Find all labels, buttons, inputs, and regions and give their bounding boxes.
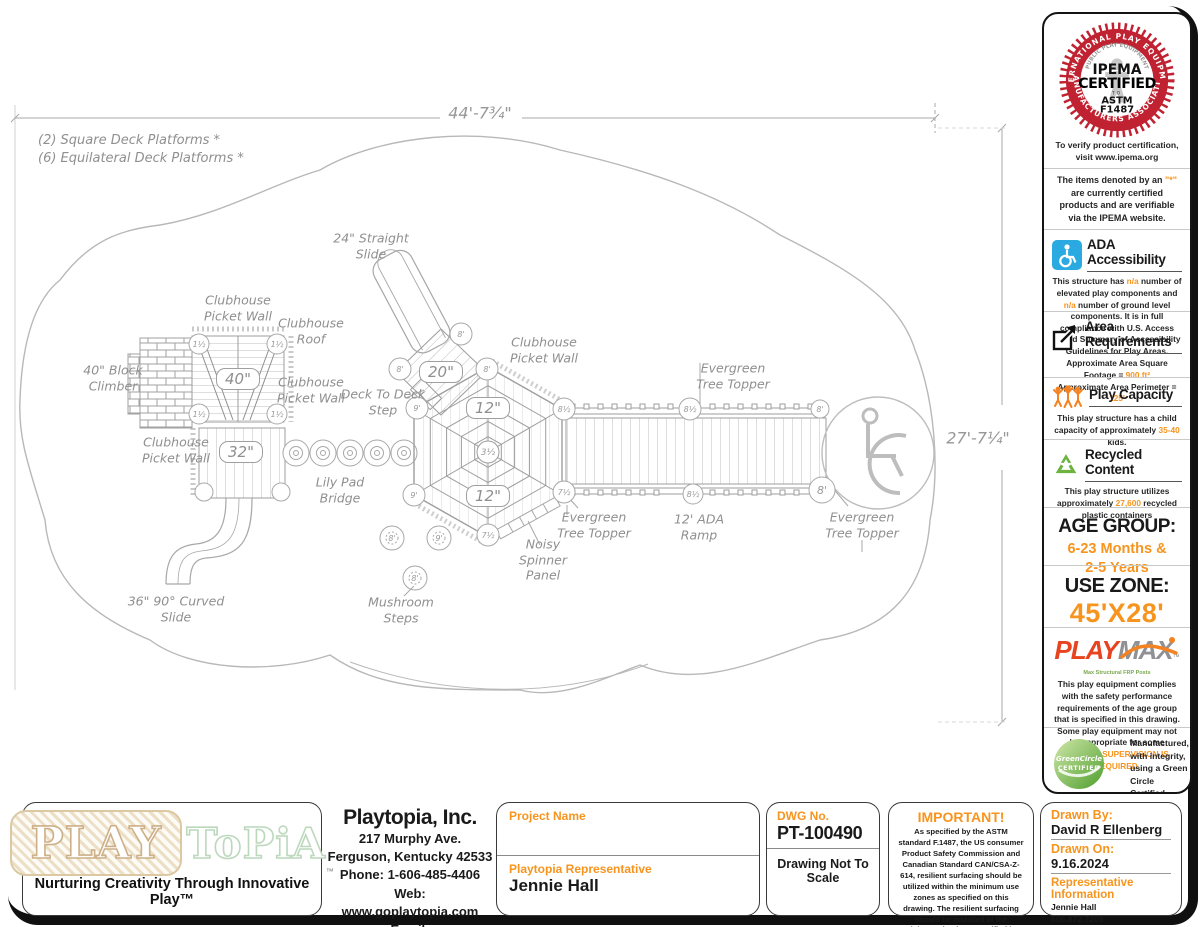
logo-play-text: PLAY xyxy=(31,818,162,869)
svg-text:8': 8' xyxy=(411,574,418,583)
svg-text:CERTIFIED: CERTIFIED xyxy=(1078,76,1156,92)
dwg-box: DWG No. PT-100490 Drawing Not To Scale xyxy=(766,802,880,916)
height-dimension: 27'-7¼" xyxy=(940,429,1016,448)
recycle-icon xyxy=(1052,452,1080,478)
logo-tagline: Nurturing Creativity Through Innovative … xyxy=(23,876,321,908)
ipema-section: INTERNATIONAL PLAY EQUIPMENT MANUFACTURE… xyxy=(1044,14,1190,168)
ada-na-2: n/a xyxy=(1064,300,1076,310)
company-email: Email: info@goplaytopia.com xyxy=(327,921,493,927)
label-picket-wall-top: Clubhouse Picket Wall xyxy=(203,292,273,323)
important-title: IMPORTANT! xyxy=(897,809,1025,825)
svg-text:8': 8' xyxy=(388,534,395,543)
ipema-seal: INTERNATIONAL PLAY EQUIPMENT MANUFACTURE… xyxy=(1058,21,1176,139)
label-lily-pad: Lily Pad Bridge xyxy=(305,474,375,505)
ada-title: ADA Accessibility xyxy=(1087,237,1182,272)
label-evergreen-top: Evergreen Tree Topper xyxy=(689,360,777,391)
rep-phone: 606.872.7209 xyxy=(1051,913,1171,925)
ipema-note-star: "*" xyxy=(1165,175,1177,185)
drawn-on-label: Drawn On: xyxy=(1051,842,1171,856)
platform-note-2: (6) Equilateral Deck Platforms * xyxy=(38,151,244,166)
svg-text:9': 9' xyxy=(410,491,417,500)
deck-size-32: 32" xyxy=(219,441,263,463)
ipema-verify-text: To verify product certification, visit w… xyxy=(1052,139,1182,163)
ipema-note-pre: The items denoted by an xyxy=(1057,175,1165,185)
recycled-section: Recycled Content This play structure uti… xyxy=(1044,439,1190,507)
label-deck-step: Deck To Deck Step xyxy=(340,386,426,417)
project-box: Project Name Playtopia Representative Je… xyxy=(496,802,760,916)
svg-text:CERTIFIED: CERTIFIED xyxy=(1058,764,1100,772)
age-group-line1: 6-23 Months & xyxy=(1052,540,1182,558)
capacity-section: Play Capacity This play structure has a … xyxy=(1044,377,1190,439)
label-picket-wall-mid: Clubhouse Picket Wall xyxy=(509,334,579,365)
logo-topia-text: ToPiA xyxy=(186,819,326,868)
svg-text:1½: 1½ xyxy=(193,410,206,419)
green-circle-badge: GreenCircle CERTIFIED POLY'TUF POLYFORCE xyxy=(1052,737,1124,794)
green-circle-section: GreenCircle CERTIFIED POLY'TUF POLYFORCE… xyxy=(1044,727,1190,794)
rep-info-label: Representative Information xyxy=(1051,877,1171,901)
drawn-box: Drawn By: David R Ellenberg Drawn On: 9.… xyxy=(1040,802,1182,916)
capacity-value: 35-40 xyxy=(1158,425,1179,435)
platform-note-1: (2) Square Deck Platforms * xyxy=(38,133,220,148)
svg-text:8': 8' xyxy=(483,365,490,374)
playmax-section: PLAYMAX™ Max Structural FRP Posts This p… xyxy=(1044,627,1190,727)
label-ada-ramp: 12' ADA Ramp xyxy=(656,511,742,542)
svg-text:1½: 1½ xyxy=(193,340,206,349)
lily-pad-bridge xyxy=(283,440,417,466)
playtopia-logo: PLAY ToPiA ™ xyxy=(10,810,334,876)
age-group-section: AGE GROUP: 6-23 Months & 2-5 Years xyxy=(1044,507,1190,565)
deck-size-12-top: 12" xyxy=(466,397,510,419)
area-expand-icon xyxy=(1052,323,1080,351)
representative-value: Jennie Hall xyxy=(509,876,747,896)
ada-wheelchair-icon xyxy=(1052,240,1082,270)
playmax-play-text: PLAY xyxy=(1054,635,1117,665)
curved-slide xyxy=(166,498,252,584)
svg-text:8½: 8½ xyxy=(684,405,697,414)
label-curved-slide: 36" 90° Curved Slide xyxy=(124,593,228,624)
play-hatch-badge: PLAY xyxy=(10,810,182,876)
ada-text-1: This structure has xyxy=(1052,276,1126,286)
children-icon xyxy=(1052,385,1084,409)
project-name-label: Project Name xyxy=(509,809,747,823)
label-evergreen-right: Evergreen Tree Topper xyxy=(816,509,908,540)
company-info: Playtopia, Inc. 217 Murphy Ave. Ferguson… xyxy=(327,806,493,927)
drawn-by-value: David R Ellenberg xyxy=(1051,822,1171,840)
svg-text:8': 8' xyxy=(457,330,464,339)
label-mushroom: Mushroom Steps xyxy=(357,594,445,625)
company-name: Playtopia, Inc. xyxy=(327,806,493,830)
area-title: Area Requirements xyxy=(1085,319,1182,354)
use-zone-value: 45'X28' xyxy=(1052,598,1182,629)
svg-text:7½: 7½ xyxy=(482,531,495,540)
svg-text:8': 8' xyxy=(816,405,823,414)
wheelchair-symbol xyxy=(822,397,934,509)
representative-label: Playtopia Representative xyxy=(509,862,747,876)
recycled-title: Recycled Content xyxy=(1085,447,1182,482)
company-address-1: 217 Murphy Ave. xyxy=(327,830,493,848)
deck-size-12-bottom: 12" xyxy=(466,485,510,507)
logo-box: PLAY ToPiA ™ Nurturing Creativity Throug… xyxy=(22,802,322,916)
use-zone-section: USE ZONE: 45'X28' xyxy=(1044,565,1190,627)
drawing-sheet: 1½ 1½ 1½ 1½ 8' 8' 8' 9' 9' 7½ 8½ 7½ 8½ 8… xyxy=(0,0,1200,927)
certification-sidebar: INTERNATIONAL PLAY EQUIPMENT MANUFACTURE… xyxy=(1042,12,1192,794)
label-block-climber: 40" Block Climber xyxy=(63,362,163,393)
age-group-title: AGE GROUP: xyxy=(1052,516,1182,538)
svg-text:1½: 1½ xyxy=(271,410,284,419)
drawn-by-label: Drawn By: xyxy=(1051,808,1171,822)
svg-text:8': 8' xyxy=(396,365,403,374)
label-picket-wall-left: Clubhouse Picket Wall xyxy=(139,434,213,465)
dwg-number: PT-100490 xyxy=(777,823,869,844)
width-dimension: 44'-7¾" xyxy=(442,104,518,123)
label-spinner: Noisy Spinner Panel xyxy=(513,537,573,584)
label-straight-slide: 24" Straight Slide xyxy=(325,230,417,261)
plan-linework: 1½ 1½ 1½ 1½ 8' 8' 8' 9' 9' 7½ 8½ 7½ 8½ 8… xyxy=(0,0,1040,795)
company-address-2: Ferguson, Kentucky 42533 xyxy=(327,848,493,866)
rep-name: Jennie Hall xyxy=(1051,901,1171,913)
label-picket-wall-right: Clubhouse Picket Wall xyxy=(276,374,346,405)
svg-text:7½: 7½ xyxy=(558,488,571,497)
plan-drawing: 1½ 1½ 1½ 1½ 8' 8' 8' 9' 9' 7½ 8½ 7½ 8½ 8… xyxy=(0,0,1040,795)
green-circle-text: Manufactured, with integrity, using a Gr… xyxy=(1130,737,1189,794)
svg-text:8½: 8½ xyxy=(687,490,700,499)
dwg-label: DWG No. xyxy=(777,809,869,823)
ada-na-1: n/a xyxy=(1127,276,1139,286)
playmax-swoosh-icon xyxy=(1120,635,1180,661)
svg-text:3½: 3½ xyxy=(481,448,496,458)
dwg-scale-note: Drawing Not To Scale xyxy=(767,849,879,893)
deck-size-40: 40" xyxy=(216,368,260,390)
important-box: IMPORTANT! As specified by the ASTM stan… xyxy=(888,802,1034,916)
company-phone: Phone: 1-606-485-4406 xyxy=(327,866,493,884)
svg-text:9': 9' xyxy=(435,534,442,543)
ipema-note-section: The items denoted by an "*" are currentl… xyxy=(1044,168,1190,229)
company-web: Web: www.goplaytopia.com xyxy=(327,885,493,921)
svg-text:F1487: F1487 xyxy=(1100,104,1134,115)
area-section: Area Requirements Approximate Area Squar… xyxy=(1044,311,1190,377)
important-body: As specified by the ASTM standard F.1487… xyxy=(897,827,1025,927)
ada-section: ADA Accessibility This structure has n/a… xyxy=(1044,229,1190,311)
playmax-logo: PLAYMAX™ xyxy=(1052,635,1182,673)
deck-size-20: 20" xyxy=(419,361,463,383)
drawn-on-value: 9.16.2024 xyxy=(1051,856,1171,874)
use-zone-title: USE ZONE: xyxy=(1052,575,1182,598)
svg-text:8': 8' xyxy=(817,484,827,497)
svg-text:GreenCircle: GreenCircle xyxy=(1056,755,1102,763)
ipema-note-post: are currently certified products and are… xyxy=(1059,188,1174,223)
svg-text:8½: 8½ xyxy=(558,405,571,414)
label-clubhouse-roof: Clubhouse Roof xyxy=(275,315,347,346)
capacity-title: Play Capacity xyxy=(1089,387,1182,407)
